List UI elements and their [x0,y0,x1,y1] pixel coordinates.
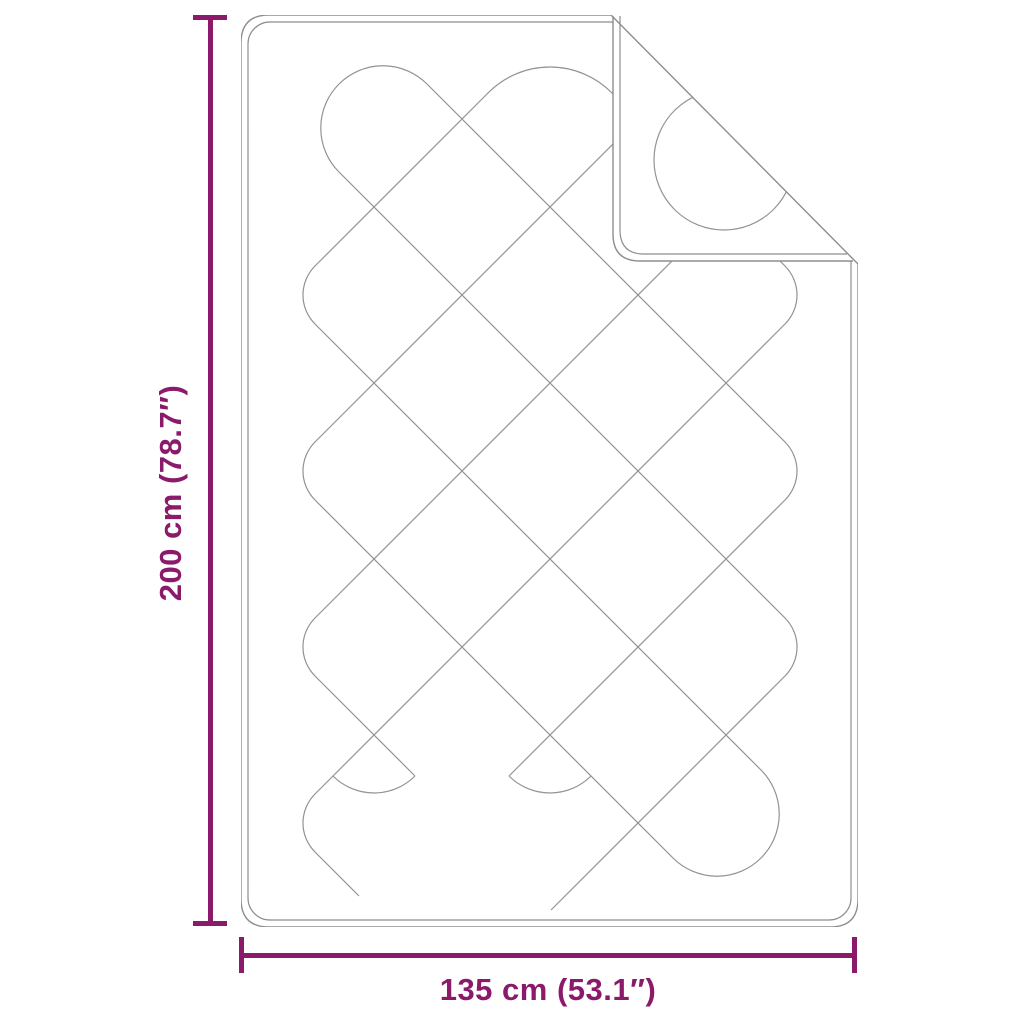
width-dimension-cap-left [239,937,244,973]
height-dimension-cap-bottom [193,921,227,926]
width-dimension-cap-right [852,937,857,973]
height-dimension-cap-top [193,15,227,20]
blanket-svg [241,15,858,927]
width-dimension-line [241,953,855,958]
product-dimension-diagram: 200 cm (78.7″) 135 cm (53.1″) [0,0,1024,1024]
blanket-illustration [241,15,858,927]
blanket-body [241,15,858,927]
height-dimension-label: 200 cm (78.7″) [153,343,189,643]
height-dimension-line [208,17,213,925]
width-dimension-label: 135 cm (53.1″) [348,972,748,1008]
